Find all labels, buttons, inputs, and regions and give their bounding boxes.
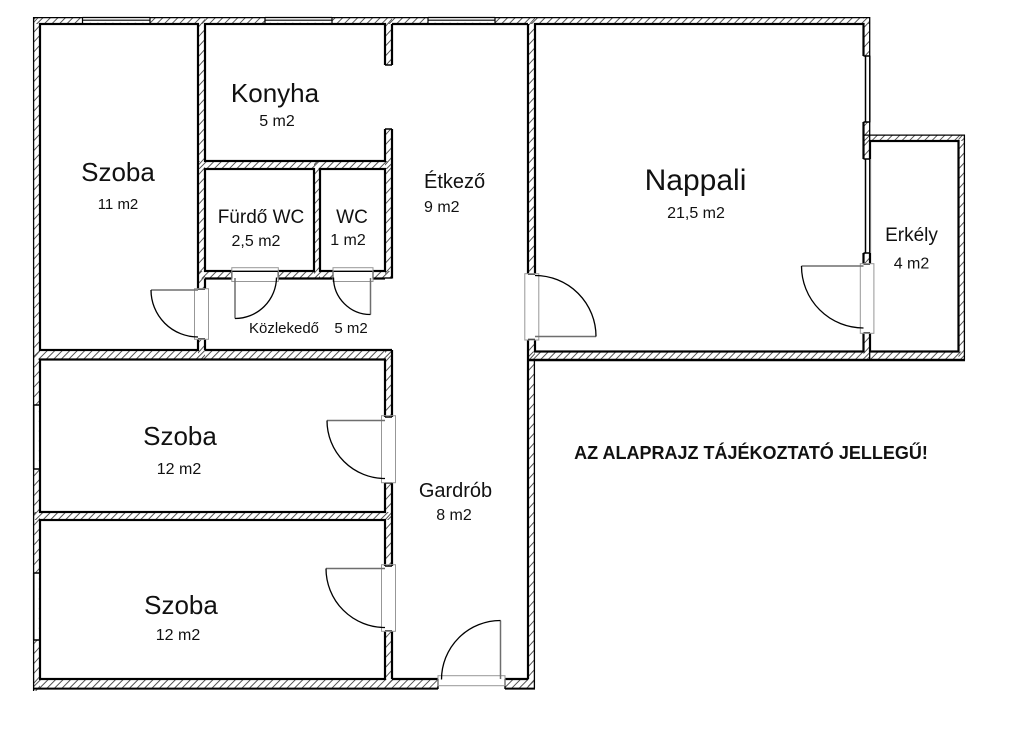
svg-text:21,5 m2: 21,5 m2 <box>667 205 725 222</box>
svg-text:8 m2: 8 m2 <box>436 507 472 524</box>
svg-text:9 m2: 9 m2 <box>424 199 460 216</box>
svg-text:Gardrób: Gardrób <box>419 480 492 502</box>
svg-text:Étkező: Étkező <box>424 170 485 193</box>
svg-text:12 m2: 12 m2 <box>156 627 201 644</box>
svg-text:Erkély: Erkély <box>885 225 938 246</box>
svg-text:4 m2: 4 m2 <box>894 256 930 273</box>
svg-text:Fürdő WC: Fürdő WC <box>218 207 305 228</box>
svg-text:Szoba: Szoba <box>144 590 218 620</box>
svg-text:Szoba: Szoba <box>81 157 155 187</box>
svg-text:Szoba: Szoba <box>143 421 217 451</box>
svg-text:12 m2: 12 m2 <box>157 461 202 478</box>
svg-text:2,5 m2: 2,5 m2 <box>232 233 281 250</box>
svg-text:Nappali: Nappali <box>645 164 747 197</box>
svg-text:5 m2: 5 m2 <box>334 320 367 337</box>
svg-text:WC: WC <box>336 207 368 228</box>
svg-text:1 m2: 1 m2 <box>330 232 366 249</box>
svg-text:Közlekedő: Közlekedő <box>249 320 319 337</box>
svg-text:5 m2: 5 m2 <box>259 113 295 130</box>
svg-text:11 m2: 11 m2 <box>98 196 139 213</box>
svg-text:AZ ALAPRAJZ TÁJÉKOZTATÓ JELLEG: AZ ALAPRAJZ TÁJÉKOZTATÓ JELLEGŰ! <box>574 442 928 463</box>
svg-text:Konyha: Konyha <box>231 78 320 108</box>
